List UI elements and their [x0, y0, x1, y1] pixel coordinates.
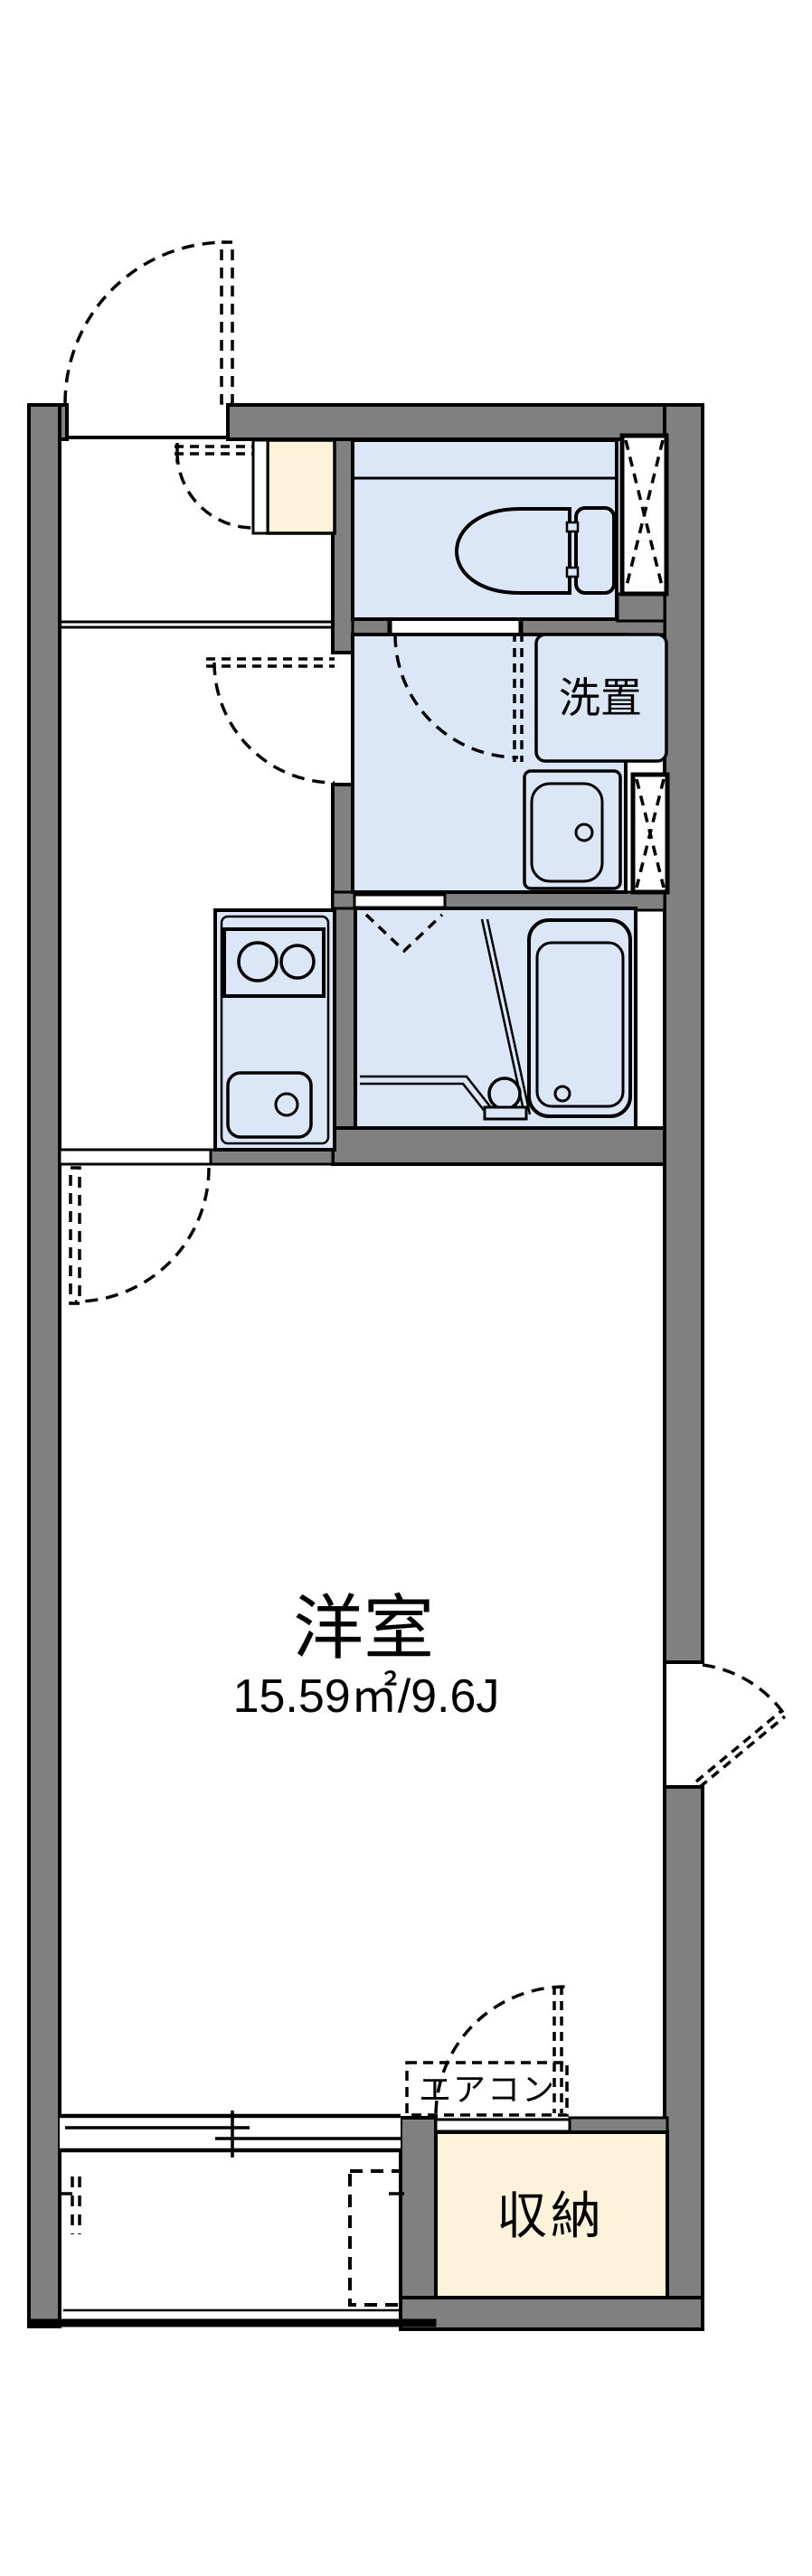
wall-right	[665, 405, 703, 2327]
wall-toilet-bottom-left	[353, 619, 389, 635]
sliding-window-band	[60, 2118, 401, 2150]
opening-closet-door	[436, 2120, 570, 2131]
hall-door-leaf	[175, 443, 253, 463]
bath-drain	[489, 1078, 520, 1109]
wall-bath-bottom	[333, 1128, 665, 1164]
toilet-bowl	[457, 509, 570, 593]
main-room-area-label: 15.59㎡/9.6J	[233, 1669, 500, 1723]
balcony-partition-dashed	[350, 2171, 401, 2305]
washbasin-drain	[576, 824, 592, 841]
opening-entrance	[69, 400, 226, 437]
shoe-cabinet-shelf	[253, 440, 268, 533]
mainroom-door-arc	[75, 1168, 209, 1302]
wall-closet-top	[570, 2118, 667, 2132]
entry-step-lines	[60, 622, 335, 627]
floorplan-drawing: 洗置 洋室 15.59㎡/9.6J エアコン 収納	[0, 0, 812, 2576]
storage-label: 収納	[496, 2187, 605, 2244]
wall-bottom-right	[401, 2298, 703, 2329]
balcony-door-leaf	[696, 1711, 785, 1787]
floorplan-page: 洗置 洋室 15.59㎡/9.6J エアコン 収納	[0, 0, 812, 2576]
wall-mainroom-top-piece	[211, 1150, 333, 1164]
toilet-connector-bottom	[567, 568, 578, 577]
wall-under-window1	[618, 594, 665, 621]
balcony-edge-outer	[29, 2319, 436, 2327]
opening-balcony-door	[666, 1664, 706, 1786]
shoe-cabinet	[268, 440, 335, 533]
bathtub-outer	[529, 920, 630, 1116]
toilet-tank	[576, 508, 614, 593]
opening-bath-door	[354, 895, 445, 907]
laundry-label: 洗置	[559, 674, 642, 721]
mainroom-door-leaf	[71, 1168, 80, 1303]
main-room-label: 洋室	[293, 1588, 434, 1668]
hall-door-arc	[177, 452, 253, 528]
washroom-door-leaf	[206, 659, 335, 666]
bath-step	[485, 1107, 526, 1119]
balcony	[29, 2171, 436, 2327]
balcony-left-marks	[72, 2176, 80, 2234]
opening-mainroom-door	[60, 1150, 211, 1164]
entrance-door-arc	[65, 242, 226, 403]
washroom-door-arc	[214, 663, 335, 783]
toilet-connector-top	[567, 522, 578, 531]
entrance-door-leaf	[222, 242, 232, 403]
wall-left	[29, 405, 60, 2327]
aircon-label: エアコン	[419, 2071, 556, 2108]
balcony-door-arc	[703, 1665, 784, 1714]
